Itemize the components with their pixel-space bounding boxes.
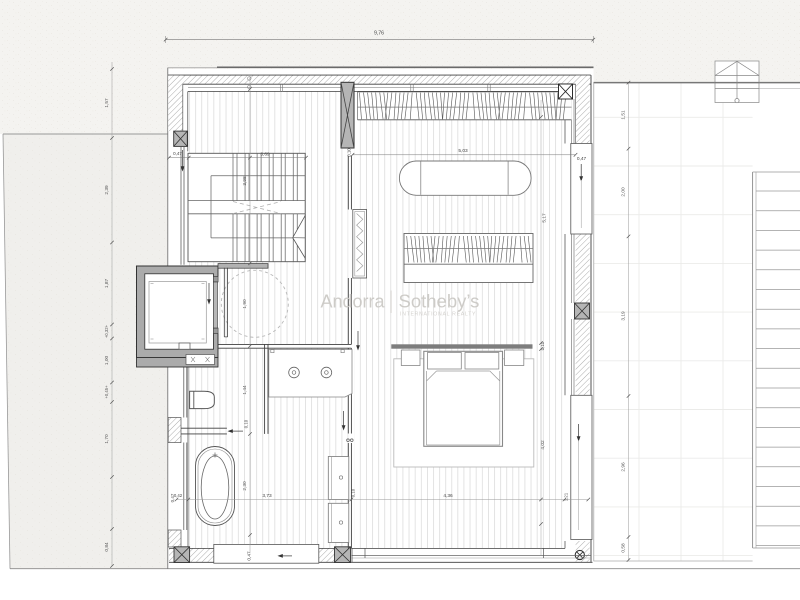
svg-text:1,51: 1,51 — [621, 110, 627, 120]
svg-text:5,17: 5,17 — [542, 213, 548, 223]
svg-text:0,47: 0,47 — [173, 151, 182, 156]
svg-text:1,57: 1,57 — [104, 98, 110, 108]
svg-text:Sotheby’s: Sotheby’s — [399, 291, 480, 312]
svg-text:1,70: 1,70 — [104, 434, 110, 444]
svg-text:4,36: 4,36 — [443, 493, 453, 499]
svg-text:2,00: 2,00 — [621, 187, 627, 197]
svg-text:0,84: 0,84 — [104, 542, 110, 552]
svg-text:+0,45+: +0,45+ — [104, 385, 109, 399]
svg-text:2,30: 2,30 — [242, 481, 248, 491]
svg-text:+0,32+: +0,32+ — [104, 324, 109, 338]
svg-text:2,96: 2,96 — [621, 462, 627, 472]
svg-text:0,47: 0,47 — [577, 156, 587, 162]
svg-text:0,42: 0,42 — [174, 493, 183, 498]
svg-text:0,10: 0,10 — [244, 419, 249, 428]
svg-text:0,10: 0,10 — [347, 148, 352, 157]
svg-text:3,69: 3,69 — [260, 151, 270, 157]
svg-text:0,47: 0,47 — [247, 551, 253, 561]
svg-text:5,03: 5,03 — [458, 148, 468, 154]
svg-text:3,19: 3,19 — [621, 311, 627, 321]
svg-text:3,98: 3,98 — [242, 176, 248, 186]
svg-text:Andorra: Andorra — [320, 292, 385, 312]
svg-text:3,73: 3,73 — [262, 493, 272, 499]
svg-text:2,39: 2,39 — [104, 185, 110, 195]
svg-text:1,90: 1,90 — [242, 299, 248, 309]
svg-text:INTERNATIONAL REALTY: INTERNATIONAL REALTY — [400, 312, 476, 318]
svg-text:1,21: 1,21 — [564, 492, 569, 501]
svg-text:4,02: 4,02 — [540, 440, 546, 450]
svg-text:1,00: 1,00 — [104, 356, 110, 366]
svg-text:0,58: 0,58 — [621, 543, 627, 553]
svg-text:0,10: 0,10 — [540, 341, 545, 350]
svg-text:0,10: 0,10 — [351, 488, 356, 497]
svg-text:9,76: 9,76 — [374, 31, 384, 37]
svg-text:1,44: 1,44 — [242, 385, 248, 395]
svg-text:1,87: 1,87 — [104, 279, 110, 289]
